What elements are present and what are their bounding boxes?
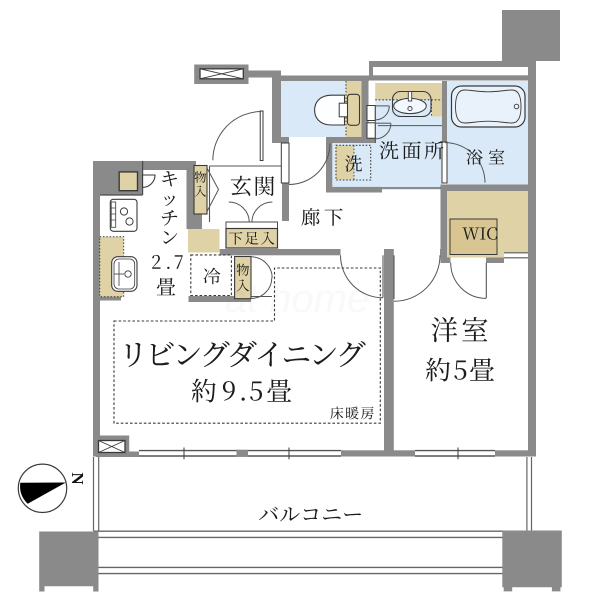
svg-text:at home: at home: [225, 277, 370, 321]
svg-text:N: N: [68, 472, 87, 485]
